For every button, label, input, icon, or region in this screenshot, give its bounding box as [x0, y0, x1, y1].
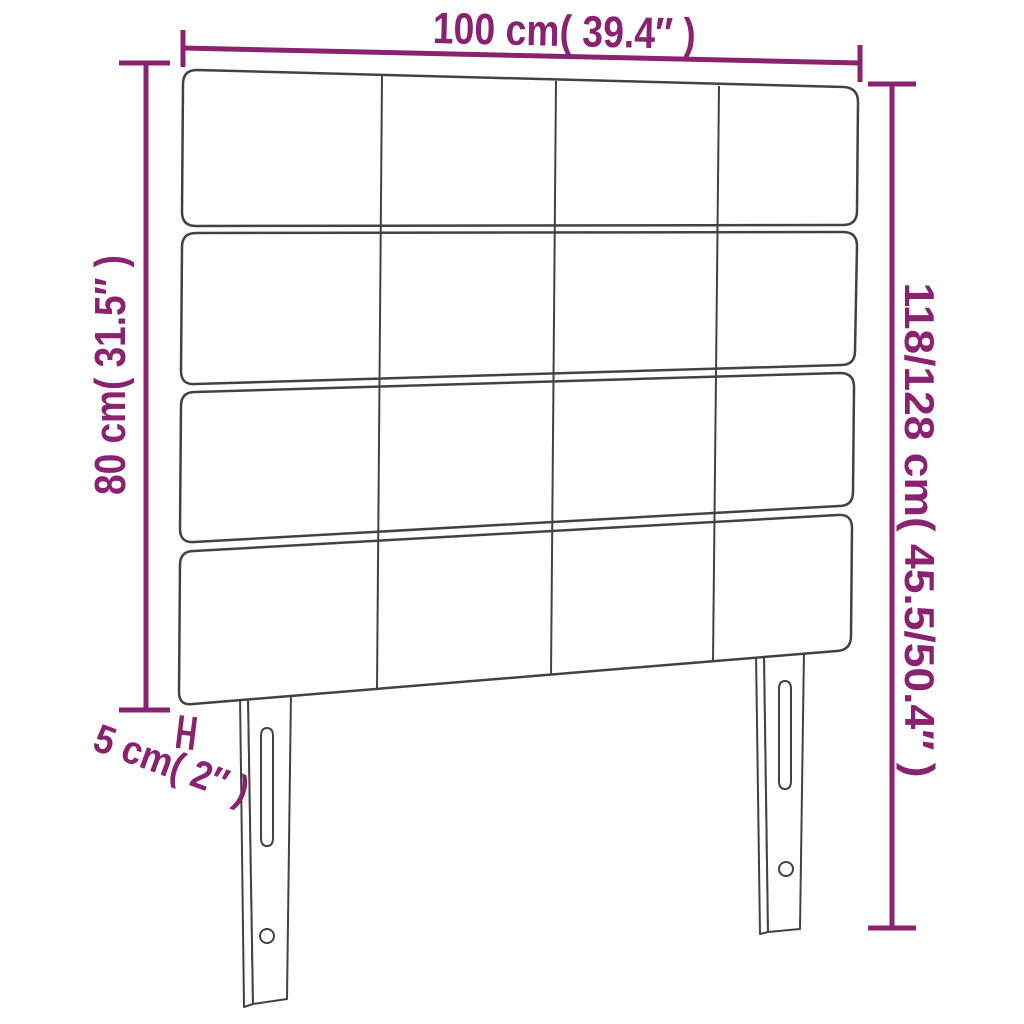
left-leg-screw-hole [260, 929, 274, 943]
headboard-dimension-diagram: 100 cm( 39.4″ ) 80 cm( 31.5″ ) 118/128 c… [0, 0, 1024, 1024]
thickness-dimension-label: 5 cm( 2″ ) [88, 716, 255, 813]
board-height-dimension-label: 80 cm( 31.5″ ) [86, 255, 135, 495]
headboard-row-2 [181, 232, 857, 384]
headboard-row-1 [182, 70, 858, 226]
headboard-row-4 [179, 515, 852, 704]
headboard-body [179, 70, 858, 704]
width-dimension-label: 100 cm( 39.4″ ) [432, 4, 696, 59]
thickness-bracket-bar [180, 732, 193, 734]
right-leg [756, 650, 804, 934]
right-leg-slot [779, 681, 791, 789]
left-leg [240, 692, 291, 1007]
diagram-canvas: 100 cm( 39.4″ ) 80 cm( 31.5″ ) 118/128 c… [0, 0, 1024, 1024]
total-height-dimension-label: 118/128 cm( 45.5/50.4″ ) [896, 283, 943, 778]
headboard-row-3 [180, 373, 854, 542]
left-leg-slot [261, 728, 273, 846]
right-leg-screw-hole [779, 862, 793, 876]
